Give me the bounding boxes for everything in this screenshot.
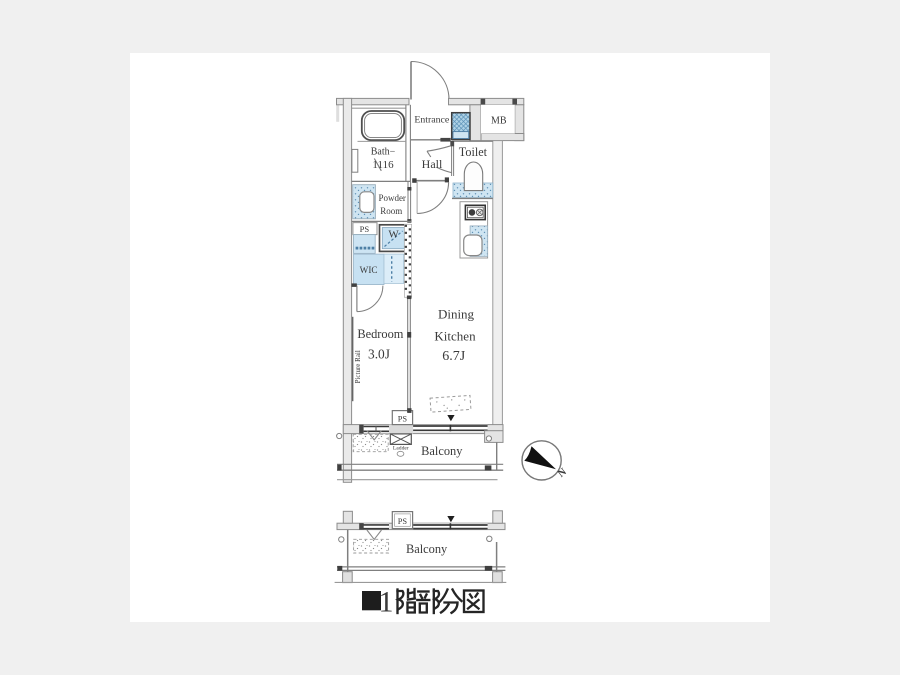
svg-text:Balcony: Balcony bbox=[421, 444, 463, 458]
svg-text:W: W bbox=[388, 228, 399, 240]
svg-text:Room: Room bbox=[380, 206, 402, 216]
svg-text:Entrance: Entrance bbox=[414, 115, 449, 126]
svg-text:PS: PS bbox=[398, 517, 408, 526]
svg-text:Dining: Dining bbox=[438, 306, 475, 321]
svg-text:Kitchen: Kitchen bbox=[434, 329, 476, 344]
svg-text:Toilet: Toilet bbox=[459, 145, 488, 159]
svg-text:MB: MB bbox=[491, 116, 507, 127]
svg-text:6.7J: 6.7J bbox=[442, 349, 466, 364]
svg-text:Picture Rail: Picture Rail bbox=[354, 350, 362, 383]
svg-text:Hall: Hall bbox=[422, 157, 443, 171]
svg-text:Bedroom: Bedroom bbox=[357, 327, 403, 341]
svg-text:PS: PS bbox=[360, 224, 370, 234]
svg-text:1116: 1116 bbox=[372, 159, 394, 171]
svg-text:Bath−: Bath− bbox=[371, 147, 396, 158]
svg-text:PS: PS bbox=[398, 414, 408, 423]
svg-text:1: 1 bbox=[379, 586, 394, 619]
svg-text:WIC: WIC bbox=[360, 265, 378, 275]
svg-text:Powder: Powder bbox=[378, 193, 406, 203]
svg-text:3.0J: 3.0J bbox=[368, 346, 390, 361]
svg-text:Balcony: Balcony bbox=[406, 542, 448, 556]
svg-text:Ladder: Ladder bbox=[393, 446, 409, 452]
